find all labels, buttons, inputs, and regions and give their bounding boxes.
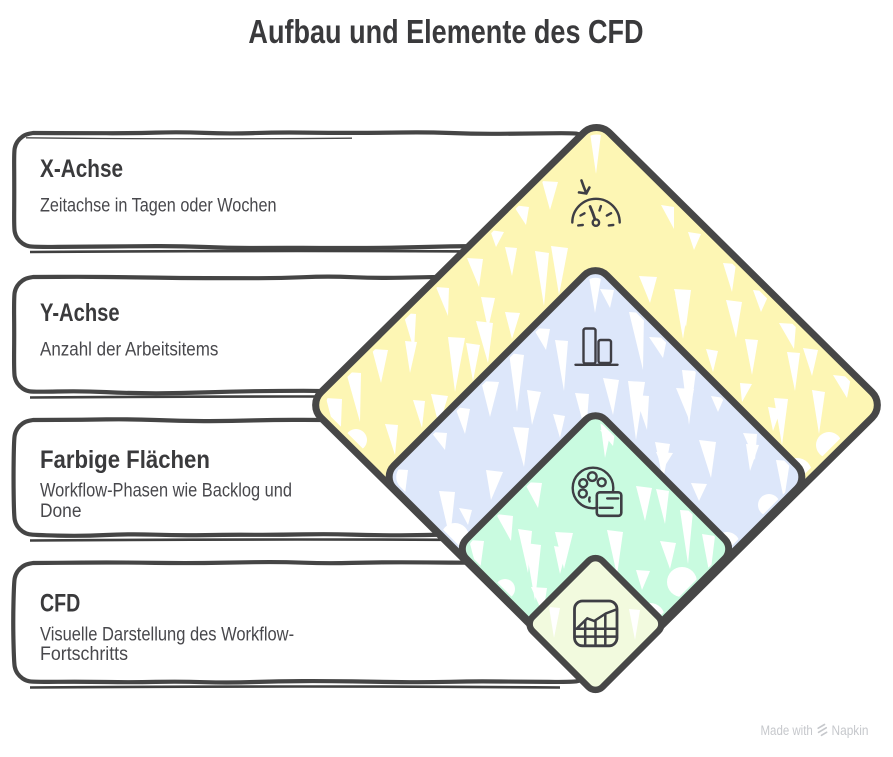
svg-text:X-Achse: X-Achse: [40, 154, 123, 182]
svg-text:Zeitachse in Tagen oder Wochen: Zeitachse in Tagen oder Wochen: [40, 194, 276, 216]
svg-text:Farbige Flächen: Farbige Flächen: [40, 447, 210, 475]
svg-text:Made with: Made with: [761, 723, 813, 738]
svg-text:Fortschritts: Fortschritts: [40, 642, 128, 664]
svg-text:Workflow-Phasen wie Backlog un: Workflow-Phasen wie Backlog und: [40, 479, 292, 500]
svg-text:Aufbau und Elemente des CFD: Aufbau und Elemente des CFD: [248, 15, 643, 51]
svg-text:Anzahl der Arbeitsitems: Anzahl der Arbeitsitems: [40, 339, 218, 360]
svg-text:Done: Done: [40, 500, 81, 521]
svg-text:Napkin: Napkin: [832, 723, 869, 738]
svg-text:CFD: CFD: [40, 589, 80, 617]
svg-text:Y-Achse: Y-Achse: [40, 298, 120, 327]
